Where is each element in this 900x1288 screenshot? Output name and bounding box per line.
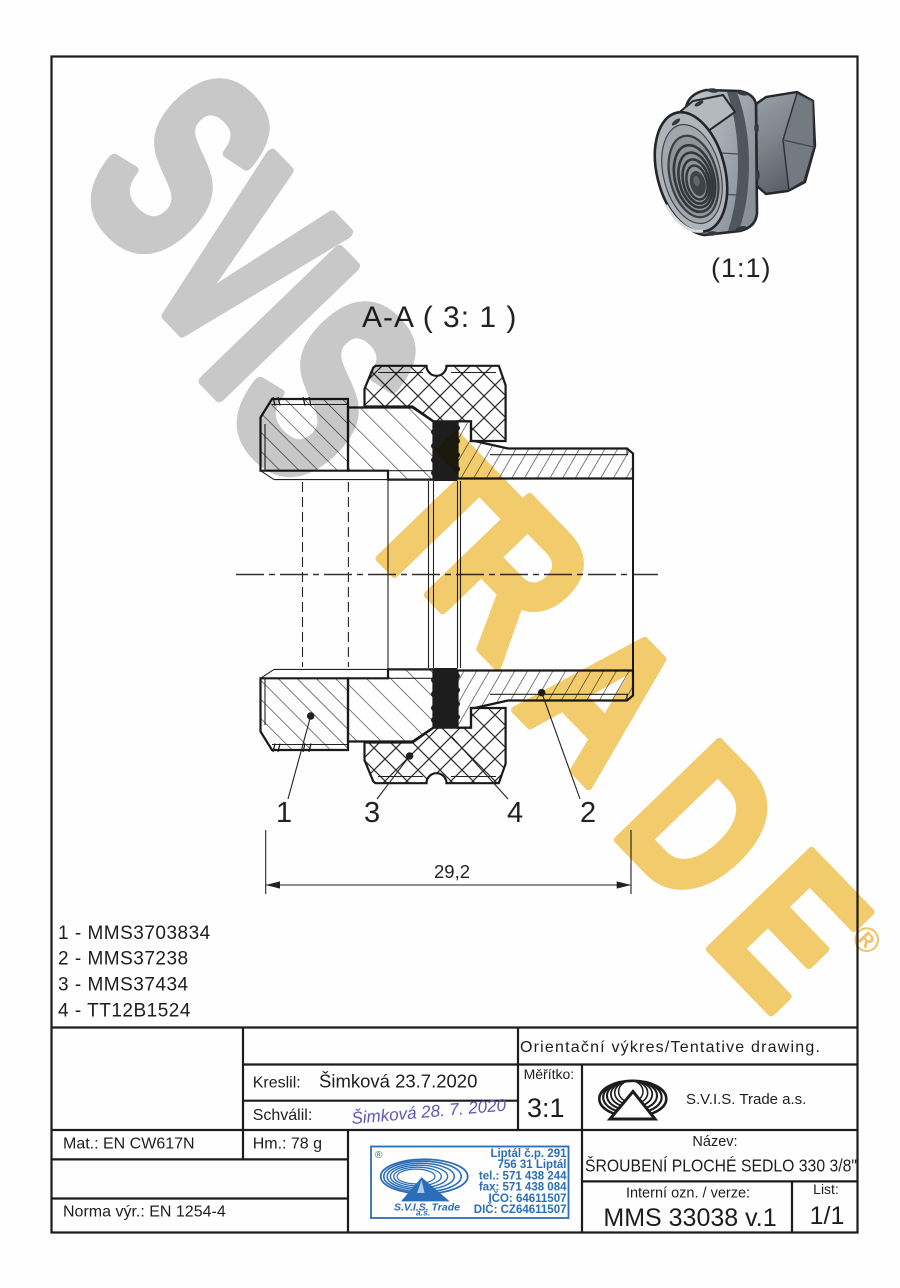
svg-text:3 - MMS37434: 3 - MMS37434 <box>58 975 189 996</box>
svg-text:2 - MMS37238: 2 - MMS37238 <box>58 949 189 970</box>
svg-text:1: 1 <box>276 797 292 829</box>
svg-text:List:: List: <box>813 1181 839 1197</box>
svg-text:Název:: Název: <box>692 1134 737 1150</box>
svg-text:3: 3 <box>364 797 380 829</box>
svg-text:ŠROUBENÍ PLOCHÉ SEDLO 330 3/8": ŠROUBENÍ PLOCHÉ SEDLO 330 3/8" <box>585 1155 857 1176</box>
svg-text:DIČ: CZ64611507: DIČ: CZ64611507 <box>474 1203 567 1216</box>
svg-text:Hm.: 78 g: Hm.: 78 g <box>253 1136 322 1153</box>
svg-text:Měřítko:: Měřítko: <box>524 1066 575 1082</box>
svg-text:Šimková 23.7.2020: Šimková 23.7.2020 <box>319 1071 477 1092</box>
svg-text:2: 2 <box>580 797 596 829</box>
svg-text:Norma výr.: EN 1254-4: Norma výr.: EN 1254-4 <box>63 1204 226 1221</box>
svg-text:Orientační výkres/Tentative dr: Orientační výkres/Tentative drawing. <box>520 1039 821 1056</box>
svg-text:3:1: 3:1 <box>527 1093 565 1123</box>
svg-text:Kreslil:: Kreslil: <box>253 1075 301 1092</box>
svg-text:Liptál č.p. 291: Liptál č.p. 291 <box>490 1148 567 1160</box>
svg-text:Schválil:: Schválil: <box>253 1107 313 1124</box>
svg-text:4 - TT12B1524: 4 - TT12B1524 <box>58 1001 191 1022</box>
svg-text:756 31 Liptál: 756 31 Liptál <box>497 1159 566 1171</box>
svg-text:Mat.: EN CW617N: Mat.: EN CW617N <box>63 1136 195 1153</box>
svg-text:a.s.: a.s. <box>416 1208 430 1218</box>
svg-text:29,2: 29,2 <box>434 861 470 882</box>
svg-text:fax: 571 438 084: fax: 571 438 084 <box>479 1182 567 1194</box>
svg-text:Interní ozn. / verze:: Interní ozn. / verze: <box>626 1186 750 1202</box>
svg-text:MMS 33038 v.1: MMS 33038 v.1 <box>603 1204 776 1232</box>
svg-text:1 - MMS3703834: 1 - MMS3703834 <box>58 923 211 944</box>
svg-text:1/1: 1/1 <box>810 1202 845 1230</box>
svg-text:4: 4 <box>507 797 523 829</box>
svg-text:(1:1): (1:1) <box>711 253 772 283</box>
svg-text:S.V.I.S. Trade a.s.: S.V.I.S. Trade a.s. <box>686 1091 806 1108</box>
svg-text:®: ® <box>375 1150 383 1161</box>
